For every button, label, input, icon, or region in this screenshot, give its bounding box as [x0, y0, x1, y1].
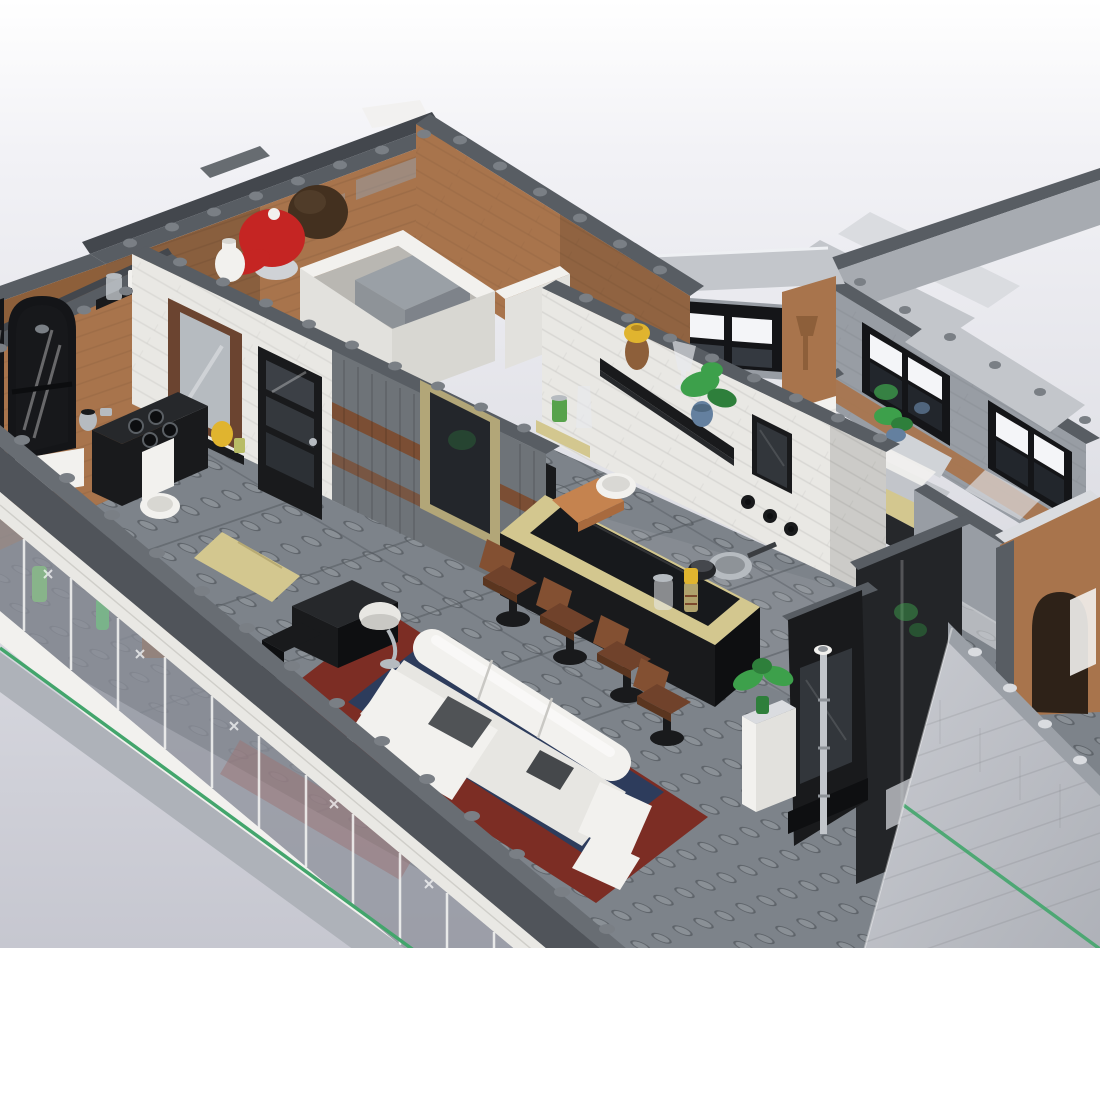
glass-jar	[653, 574, 673, 610]
lego-render-image	[0, 0, 1100, 1100]
white-bottom-band	[0, 948, 1100, 1100]
pepper-grinder	[684, 568, 698, 612]
amber-vase	[624, 323, 650, 370]
scene-canvas	[0, 0, 1100, 1100]
nougat-corner-lamp	[782, 276, 836, 412]
island-bowl	[596, 473, 636, 499]
